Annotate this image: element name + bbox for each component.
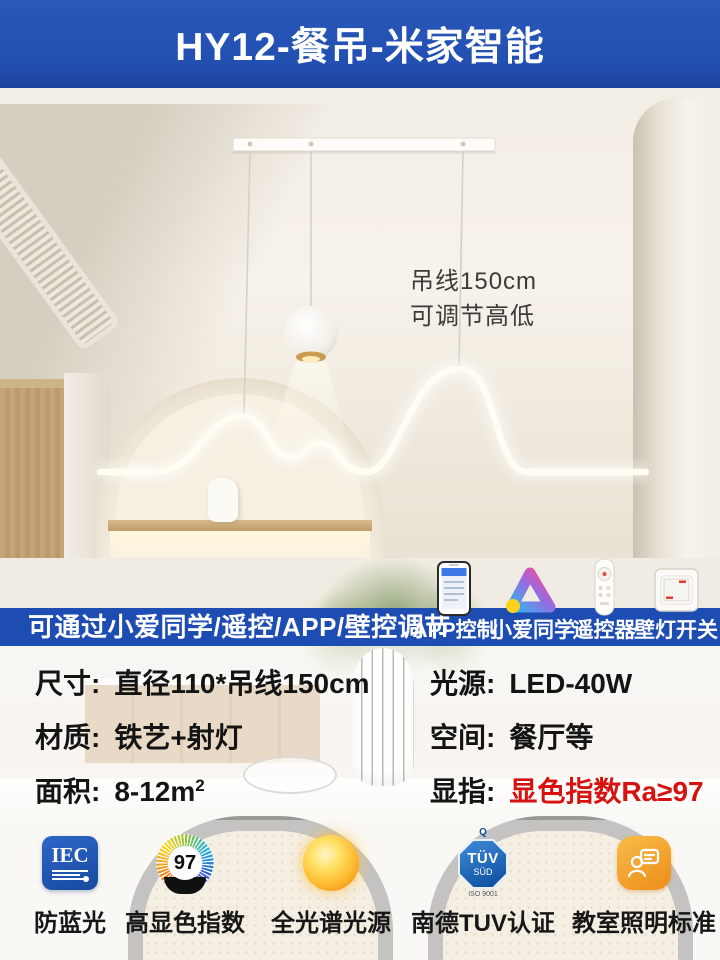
cert-label: 南德TUV认证 <box>411 903 555 938</box>
cert-classroom-standard: 教室照明标准 <box>572 832 716 938</box>
wall-switch-label: 壁灯开关 <box>634 616 718 646</box>
title-banner: HY12-餐吊-米家智能 <box>0 0 720 88</box>
note-line1: 吊线150cm <box>410 264 537 299</box>
spec-area-label: 面积: <box>35 776 100 807</box>
product-title: HY12-餐吊-米家智能 <box>175 16 545 72</box>
suspension-cable <box>459 151 463 367</box>
cert-label: 防蓝光 <box>34 903 106 938</box>
remote-control-icon <box>594 558 615 621</box>
product-poster: HY12-餐吊-米家智能 <box>0 0 720 960</box>
spec-area-superscript: 2 <box>195 776 204 795</box>
spec-material-label: 材质: <box>35 722 100 753</box>
spec-size: 尺寸:直径110*吊线150cm <box>35 664 370 704</box>
cert-label: 教室照明标准 <box>572 903 716 938</box>
spec-cri: 显指:显色指数Ra≥97 <box>430 772 704 812</box>
iec-logo-icon: IEC <box>42 836 98 890</box>
spec-space-value: 餐厅等 <box>509 722 593 753</box>
phone-app-icon <box>437 561 471 621</box>
tuv-badge-line2: SÜD <box>473 868 492 877</box>
cri-97-badge-icon: 97 <box>156 834 214 892</box>
spec-material-value: 铁艺+射灯 <box>114 722 242 753</box>
note-line2: 可调节高低 <box>410 299 537 334</box>
xiaoai-logo-icon <box>502 566 558 621</box>
cert-tuv: Q TÜV SÜD ISO 9001 南德TUV认证 <box>411 832 555 938</box>
wall-switch-icon <box>654 568 699 617</box>
spec-size-value: 直径110*吊线150cm <box>114 668 369 699</box>
cert-full-spectrum: 全光谱光源 <box>271 832 391 938</box>
spec-cri-value: 显色指数Ra≥97 <box>509 776 703 807</box>
spec-light-source: 光源:LED-40W <box>430 664 632 704</box>
sun-icon <box>303 835 359 891</box>
spec-space-label: 空间: <box>430 722 495 753</box>
tuv-iso-text: ISO 9001 <box>468 891 498 898</box>
spec-light-value: LED-40W <box>509 668 632 699</box>
ceiling-canopy <box>233 138 495 151</box>
cri-badge-number: 97 <box>168 846 202 880</box>
spec-area-value: 8-12m <box>114 776 195 807</box>
cert-label: 高显色指数 <box>125 903 245 938</box>
tuv-sud-badge-icon: Q TÜV SÜD ISO 9001 <box>458 828 508 898</box>
spec-size-label: 尺寸: <box>35 668 100 699</box>
cable-length-note: 吊线150cm 可调节高低 <box>410 264 537 334</box>
spec-area: 面积:8-12m2 <box>35 772 205 812</box>
classroom-lighting-icon <box>617 836 671 890</box>
control-methods-headline: 可通过小爱同学/遥控/APP/壁控调节 <box>28 608 451 646</box>
spec-material: 材质:铁艺+射灯 <box>35 718 243 758</box>
tuv-q-mark: Q <box>479 828 487 838</box>
suspension-cable <box>244 151 250 415</box>
spec-light-label: 光源: <box>430 668 495 699</box>
cert-label: 全光谱光源 <box>271 903 391 938</box>
spec-space: 空间:餐厅等 <box>430 718 593 758</box>
spec-cri-label: 显指: <box>430 776 495 807</box>
cert-high-cri: 97 高显色指数 <box>125 832 245 938</box>
cert-anti-blue-light: IEC 防蓝光 <box>34 832 106 938</box>
tuv-badge-line1: TÜV <box>467 851 499 866</box>
iec-badge-text: IEC <box>51 844 88 866</box>
